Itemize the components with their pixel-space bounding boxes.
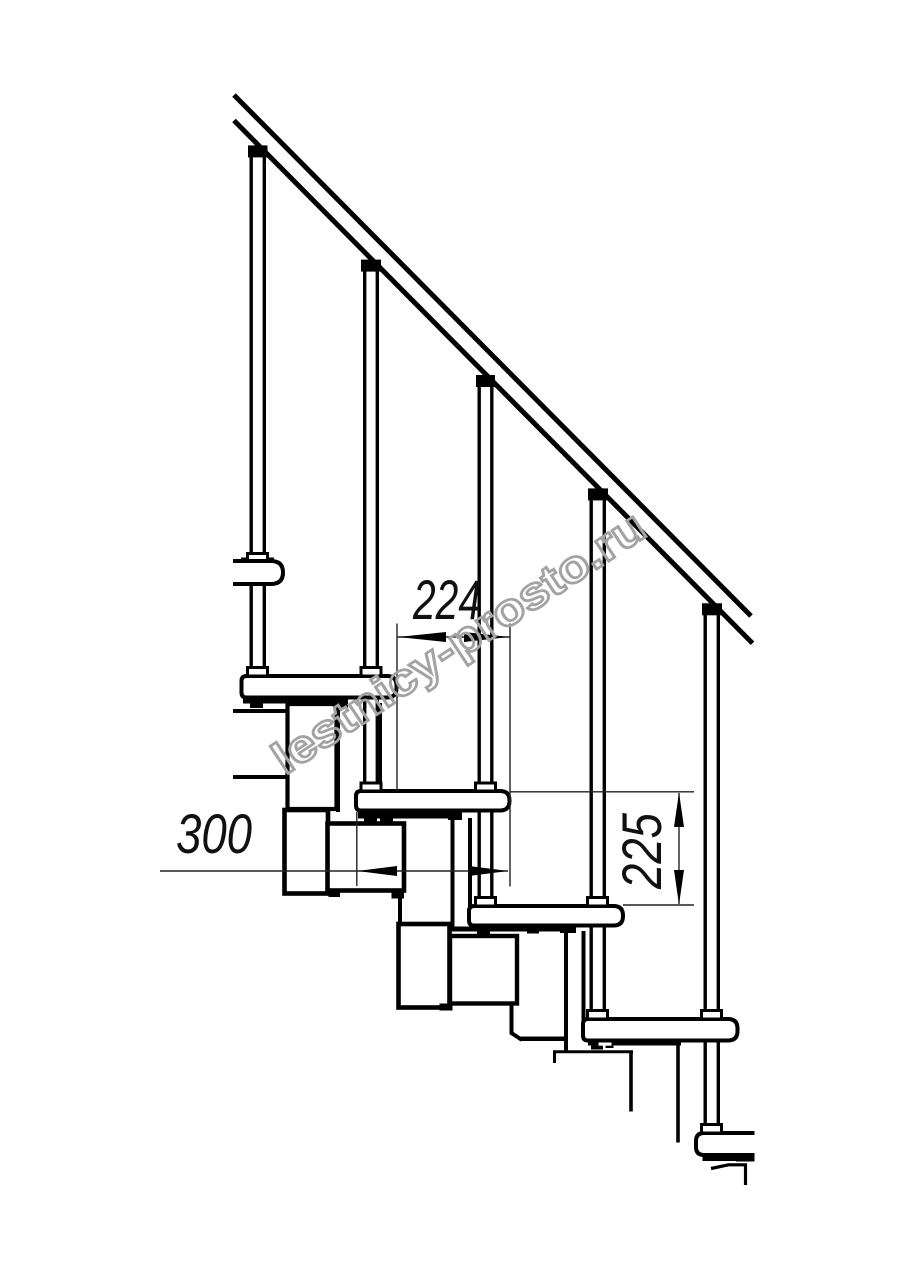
svg-text:225: 225 xyxy=(610,812,673,890)
svg-text:300: 300 xyxy=(176,802,252,865)
